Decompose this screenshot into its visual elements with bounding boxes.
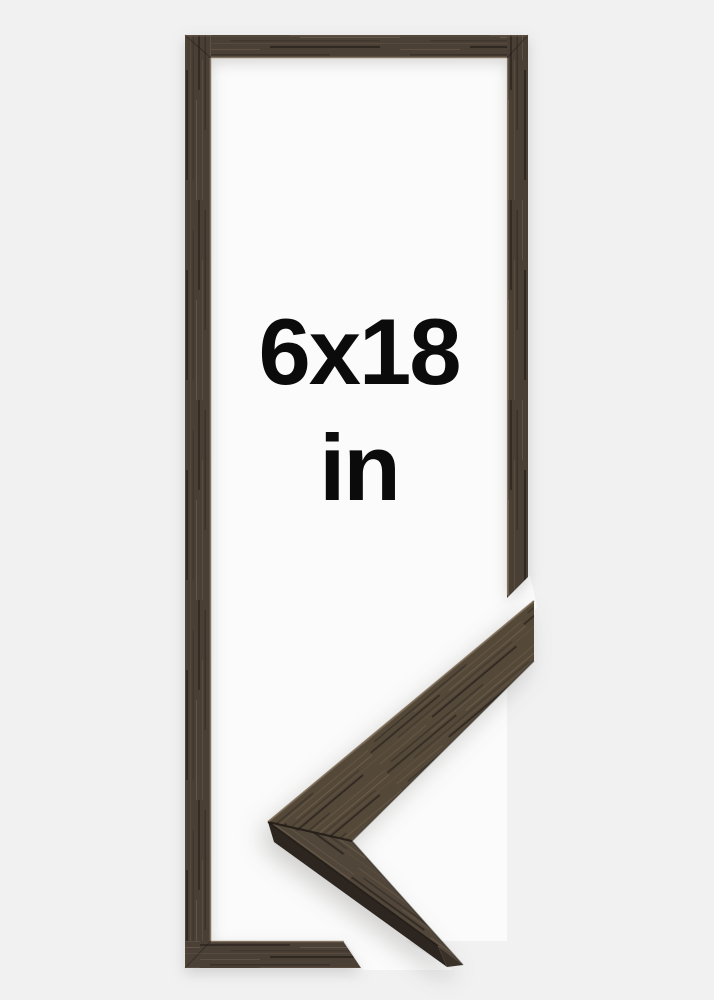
frame-top-rail — [185, 35, 528, 58]
size-label: 6x18 — [211, 302, 507, 402]
frame-left-rail — [185, 35, 211, 968]
product-image-frame-6x18: 6x18 in — [0, 0, 714, 1000]
unit-label: in — [211, 418, 507, 518]
frame-bottom-rail — [185, 941, 361, 968]
frame-right-rail — [507, 35, 528, 598]
